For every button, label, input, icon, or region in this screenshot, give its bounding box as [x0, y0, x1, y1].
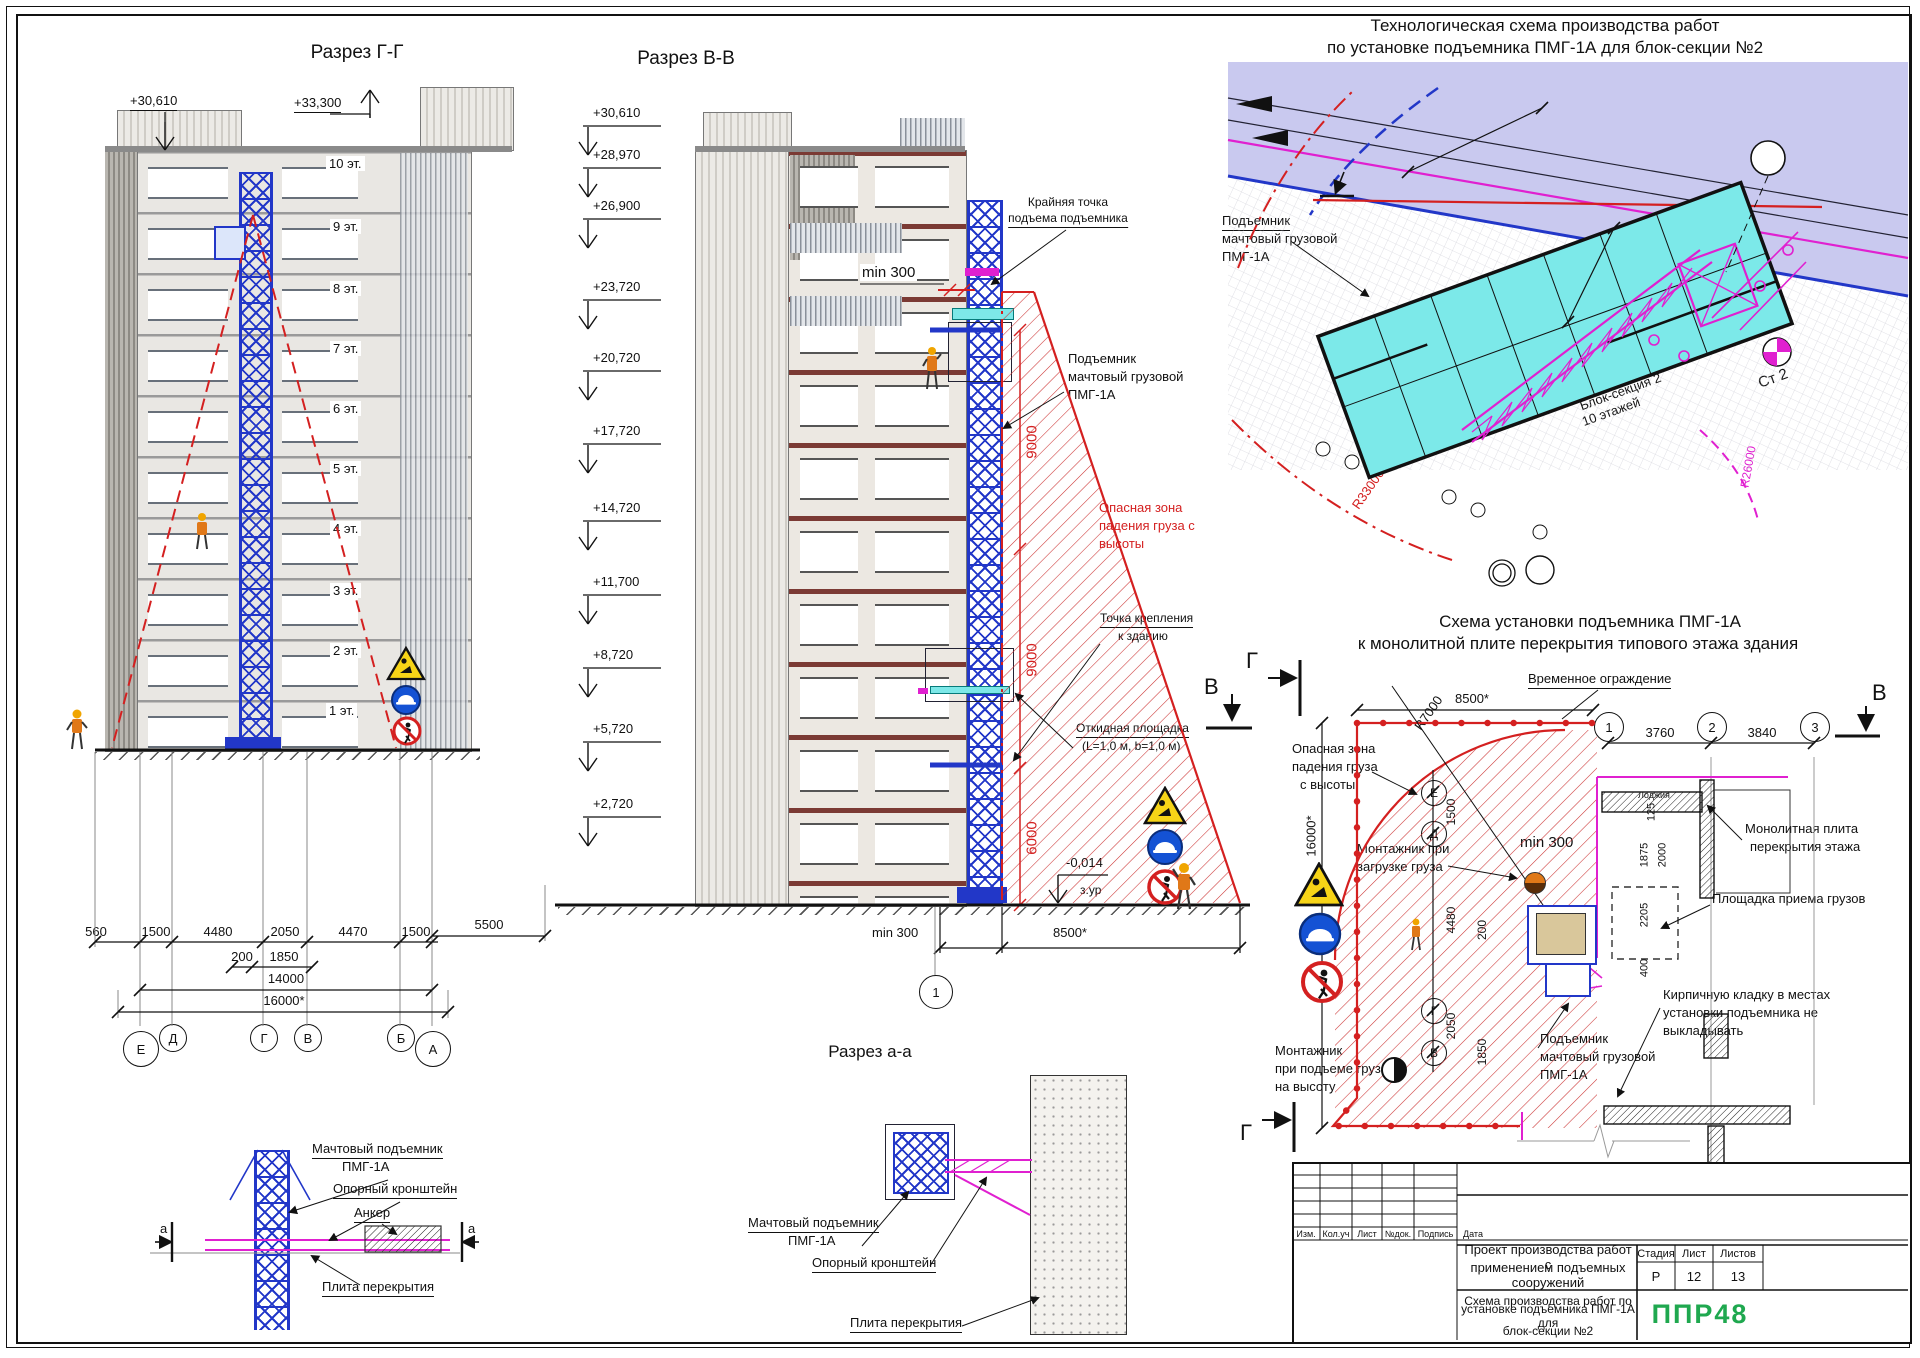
ip-hoist-cabin — [1536, 913, 1586, 955]
no-pedestrian-sign-ip — [1300, 960, 1344, 1009]
ip-marker-v-right — [1835, 706, 1880, 736]
tb-stage-value: Р — [1637, 1264, 1675, 1288]
ip-load-dot — [1524, 872, 1546, 894]
ip-top-dim — [1351, 690, 1599, 719]
ip-marker-g-bottom — [1262, 1102, 1294, 1152]
tb-sheets-value: 13 — [1713, 1264, 1763, 1288]
vv-bottom-dims — [934, 905, 1246, 975]
tb-col-list: Лист — [1352, 1227, 1382, 1240]
tb-col-ndok: №док. — [1382, 1227, 1414, 1240]
worker-gg-ground — [66, 708, 88, 757]
warning-sign-ip — [1294, 862, 1344, 913]
warning-sign-gg — [386, 646, 426, 687]
gg-dim-lines — [89, 930, 551, 1018]
detail-aa-lines — [862, 1160, 1038, 1326]
tb-draw-2: установке подъемника ПМГ-1А для — [1458, 1308, 1638, 1323]
tb-draw-3: блок-секции №2 — [1462, 1323, 1634, 1338]
gg-level-marks — [156, 90, 379, 150]
worker-gg-balcony — [192, 512, 212, 557]
worker-vv-balcony — [922, 346, 942, 397]
linework — [0, 0, 1920, 1358]
crane-stand-pie — [1763, 338, 1791, 366]
worker-vv-ground — [1172, 862, 1196, 917]
ip-hoist-plan — [1527, 905, 1597, 965]
tb-col-izm: Изм. — [1292, 1227, 1320, 1240]
tb-logo: ППР48 — [1637, 1292, 1763, 1336]
tb-sheet-header: Лист — [1675, 1246, 1713, 1262]
crane-axis-bubble — [1751, 141, 1785, 175]
detail-left-lines — [150, 1150, 479, 1285]
vv-danger-zone — [1002, 292, 1240, 903]
tb-stage-header: Стадия — [1637, 1246, 1675, 1262]
tb-col-koluch: Кол.уч — [1320, 1227, 1352, 1240]
marker-v-left — [1206, 694, 1252, 728]
hardhat-sign-ip — [1298, 912, 1342, 961]
tb-sheets-header: Листов — [1713, 1246, 1763, 1262]
load-zone-sign-ip — [1380, 1056, 1408, 1089]
gg-extension-lines — [95, 752, 545, 1026]
worker-ip — [1408, 918, 1424, 957]
site-plan — [1228, 62, 1908, 586]
tb-project-2: применением подъемных сооружений — [1458, 1266, 1638, 1284]
marker-g-top — [1268, 660, 1300, 716]
tb-col-podpis: Подпись — [1414, 1227, 1457, 1240]
gg-danger-lines — [112, 215, 396, 748]
drawing-sheet: Разрез Г-Г +30,610 +33,300 10 эт. 9 эт. … — [0, 0, 1920, 1358]
ip-hoist-frame — [1545, 963, 1591, 997]
tb-col-data: Дата — [1457, 1227, 1489, 1240]
ip-break-line — [1517, 1125, 1690, 1157]
warning-sign-vv — [1143, 786, 1187, 831]
site-axis1-bubble — [1526, 556, 1554, 584]
site-double-bubble — [1489, 560, 1515, 586]
tb-sheet-value: 12 — [1675, 1264, 1713, 1288]
no-pedestrian-sign-gg — [392, 716, 422, 751]
levels-column-marks — [579, 126, 661, 846]
